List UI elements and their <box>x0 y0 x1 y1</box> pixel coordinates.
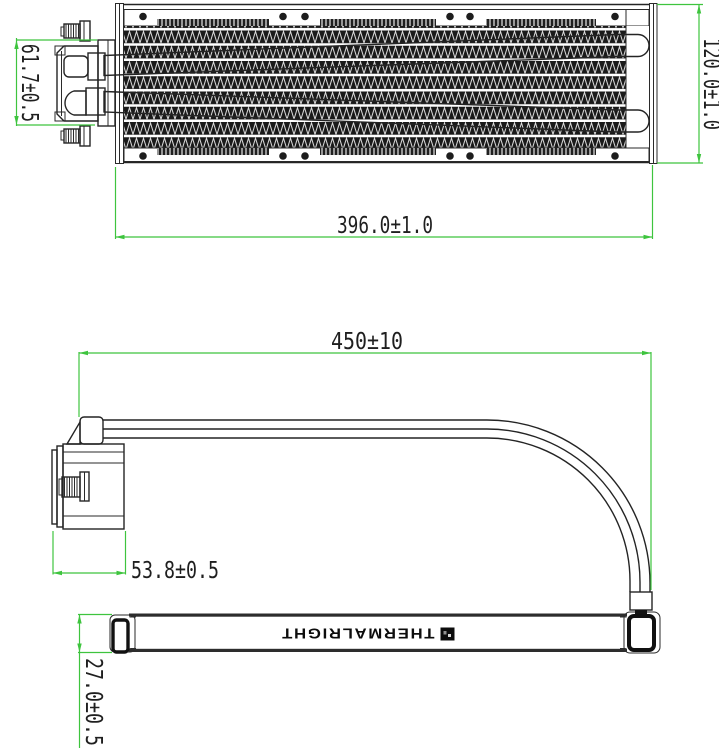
fan-screw-hole <box>611 152 619 160</box>
pump-housing <box>57 46 98 121</box>
fan-screw-hole <box>301 13 309 21</box>
top-mount-rail <box>124 10 649 27</box>
dim-radiator-thickness-label: 27.0±0.5 <box>80 658 106 746</box>
dim-tube-length-label: 450±10 <box>331 329 403 355</box>
fan-screw-hole <box>139 13 147 21</box>
thermalright-logo-icon <box>441 628 455 641</box>
radiator-right-plate <box>650 4 658 164</box>
radiator-left-plate <box>116 4 124 164</box>
hose-fitting-lower <box>65 88 105 115</box>
dim-pump-length: 53.8±0.5 <box>53 531 219 584</box>
top-view-radiator <box>104 4 657 164</box>
cold-plate <box>52 450 57 524</box>
tube-elbow <box>67 422 80 444</box>
dimensional-drawing-page: 61.7±0.5 120.0±1.0 396.0±1.0 <box>0 0 719 750</box>
thermalright-logo: THERMALRIGHT <box>281 625 455 642</box>
fan-screw-hole <box>279 152 287 160</box>
dim-radiator-width-label: 120.0±1.0 <box>698 38 719 130</box>
fan-screw-hole <box>279 13 287 21</box>
fan-screw-hole <box>466 13 474 21</box>
bottom-mount-rail <box>124 148 649 162</box>
hose-fitting-upper <box>64 53 105 80</box>
radiator-bar-bottom-edge <box>129 649 627 652</box>
mount-screw-top <box>61 21 90 41</box>
pump-block-side-view <box>52 417 124 529</box>
fan-screw-hole <box>139 152 147 160</box>
fan-screw-hole <box>466 152 474 160</box>
mount-screw-bottom <box>61 126 90 146</box>
dim-radiator-length: 396.0±1.0 <box>116 165 653 239</box>
fan-screw-hole <box>301 152 309 160</box>
dim-radiator-width: 120.0±1.0 <box>657 5 719 164</box>
dim-radiator-thickness: 27.0±0.5 <box>77 615 112 749</box>
fan-screw-hole <box>446 152 454 160</box>
drawing-canvas: 61.7±0.5 120.0±1.0 396.0±1.0 <box>0 0 719 750</box>
brand-label: THERMALRIGHT <box>281 625 435 642</box>
dim-tube-length: 450±10 <box>79 329 651 590</box>
tube-elbow-fitting <box>80 417 103 444</box>
radiator-end-slot-right <box>629 616 654 650</box>
dim-pump-length-label: 53.8±0.5 <box>131 558 219 584</box>
fan-screw-hole <box>611 13 619 21</box>
radiator-bar-top-edge <box>129 614 627 617</box>
fan-screw-hole <box>446 13 454 21</box>
dim-pump-height: 61.7±0.5 <box>14 38 97 126</box>
dim-pump-height-label: 61.7±0.5 <box>16 44 42 122</box>
dim-radiator-length-label: 396.0±1.0 <box>337 213 433 239</box>
radiator-side-view: THERMALRIGHT <box>110 592 660 653</box>
radiator-end-slot-left <box>113 620 128 652</box>
